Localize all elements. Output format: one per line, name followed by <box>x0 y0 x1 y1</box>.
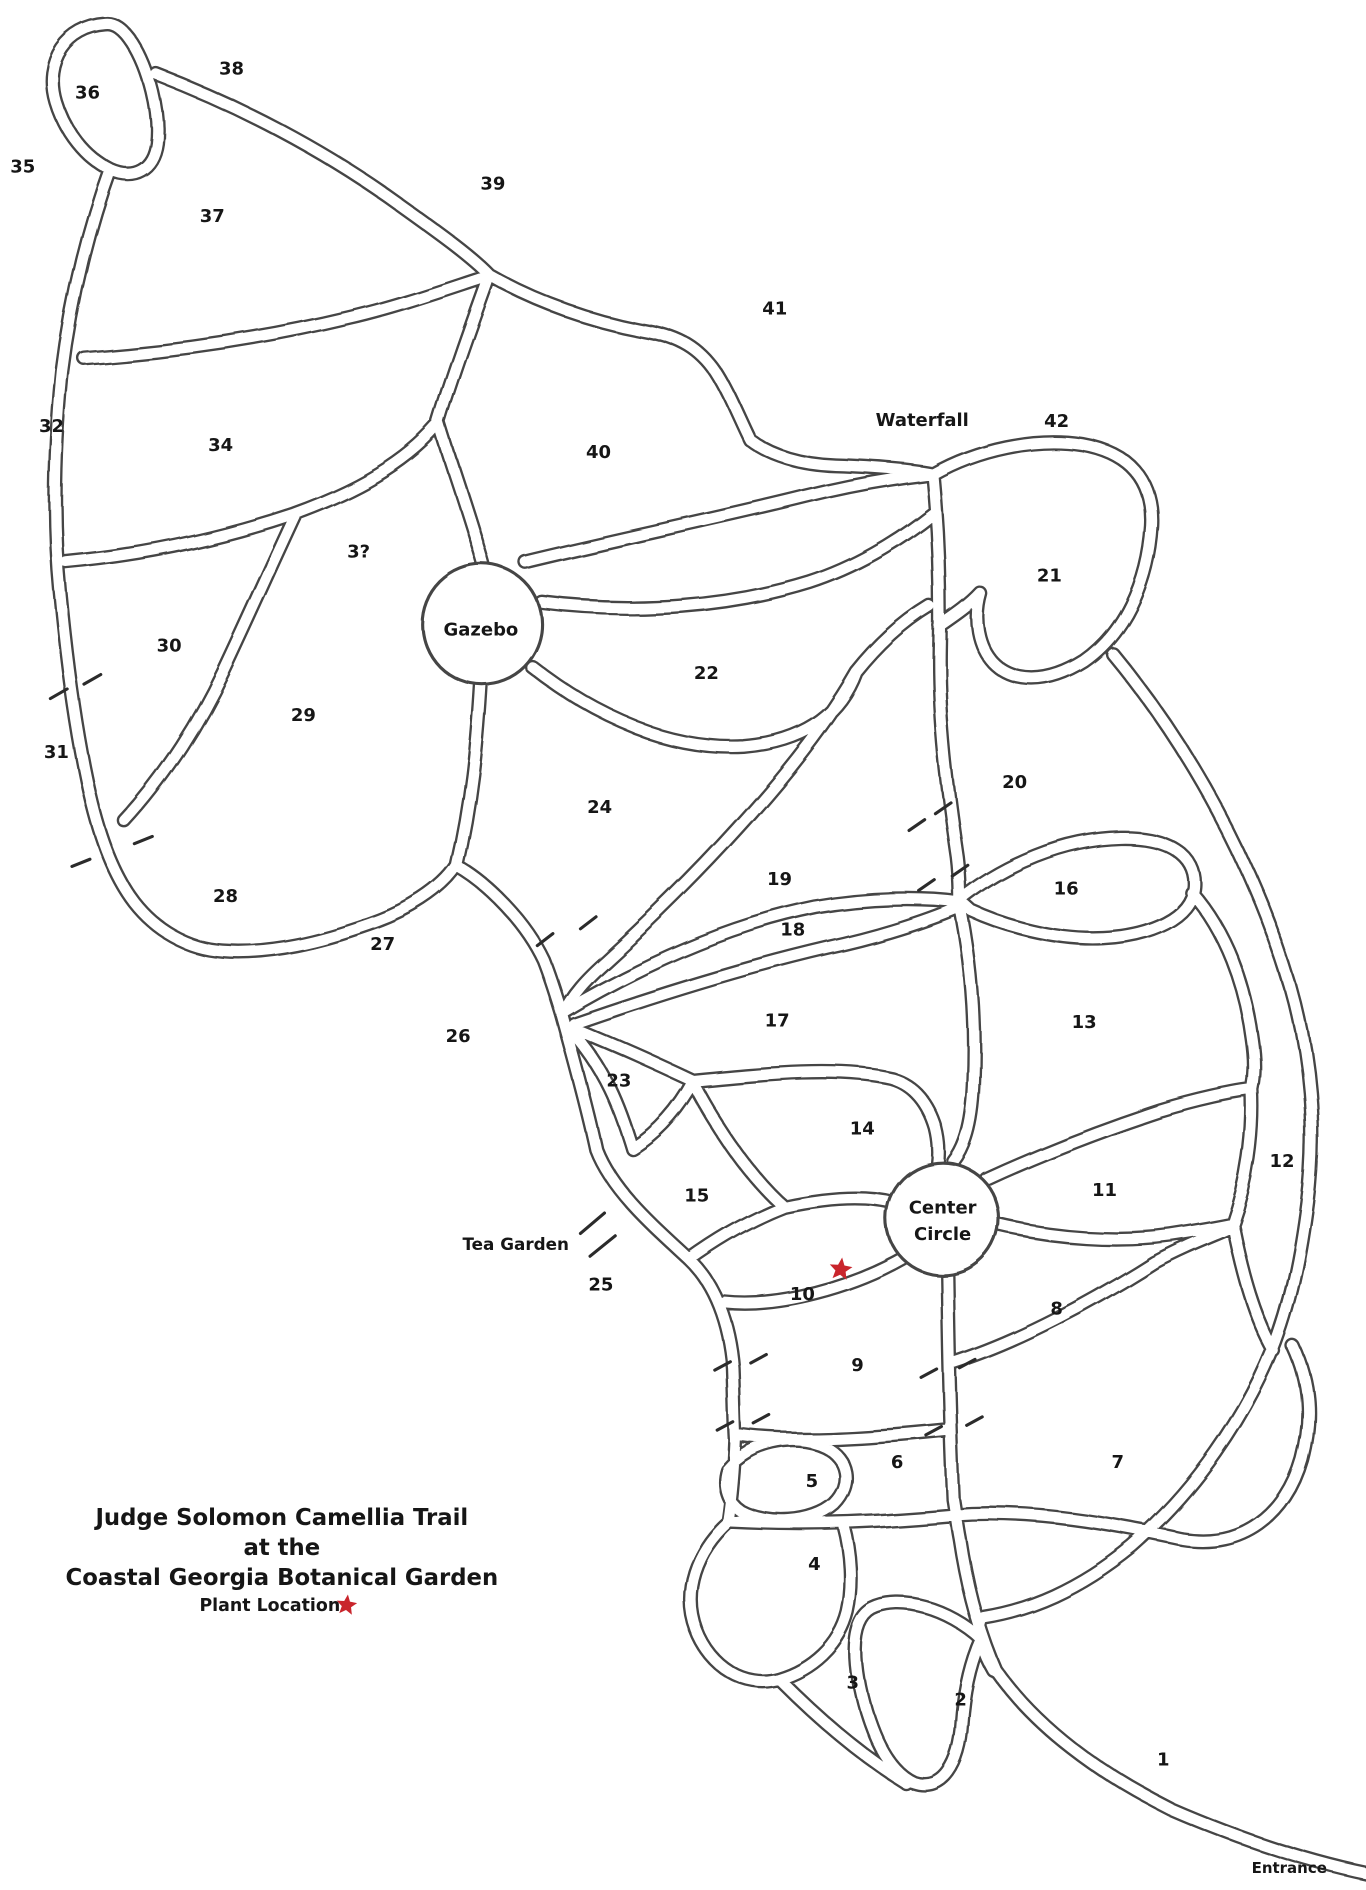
region-label-16: 16 <box>1054 879 1079 900</box>
center-circle-plaza <box>886 1163 999 1276</box>
region-label-41: 41 <box>762 298 787 319</box>
region-label-27: 27 <box>370 934 395 955</box>
legend-plant-location-label: Plant Location <box>199 1596 340 1616</box>
waterfall-label: Waterfall <box>876 410 969 431</box>
gazebo-label: Gazebo <box>444 620 519 641</box>
region-label-25: 25 <box>588 1275 613 1296</box>
region-label-31: 31 <box>44 742 69 763</box>
region-label-29: 29 <box>291 705 316 726</box>
region-label-3?: 3? <box>347 542 370 563</box>
region-label-18: 18 <box>780 920 805 941</box>
region-label-6: 6 <box>891 1452 904 1473</box>
region-label-10: 10 <box>790 1284 815 1305</box>
map-canvas: 1234567891011121314151617181920212223242… <box>0 0 1366 1890</box>
region-label-40: 40 <box>586 442 611 463</box>
feature-labels: WaterfallGazeboCenterCircleTea GardenEnt… <box>444 410 1327 1877</box>
region-label-15: 15 <box>684 1186 709 1207</box>
region-label-3: 3 <box>846 1673 859 1694</box>
region-label-32: 32 <box>39 416 64 437</box>
title-block: Judge Solomon Camellia Trail at the Coas… <box>65 1505 498 1616</box>
stairs-tick-marks <box>50 675 982 1435</box>
region-label-36: 36 <box>75 82 100 103</box>
region-label-2: 2 <box>954 1689 967 1710</box>
region-label-1: 1 <box>1157 1749 1170 1770</box>
region-label-37: 37 <box>200 206 225 227</box>
region-label-30: 30 <box>157 635 182 656</box>
region-label-28: 28 <box>213 886 238 907</box>
region-label-17: 17 <box>765 1011 790 1032</box>
region-label-39: 39 <box>480 174 505 195</box>
region-label-26: 26 <box>446 1026 471 1047</box>
region-label-42: 42 <box>1044 411 1069 432</box>
region-label-9: 9 <box>851 1355 864 1376</box>
region-label-14: 14 <box>850 1119 875 1140</box>
region-label-23: 23 <box>606 1071 631 1092</box>
map-title-line-3: Coastal Georgia Botanical Garden <box>65 1565 498 1591</box>
region-label-12: 12 <box>1270 1151 1295 1172</box>
region-label-11: 11 <box>1092 1180 1117 1201</box>
region-label-35: 35 <box>10 157 35 178</box>
region-label-38: 38 <box>219 58 244 79</box>
entrance-label: Entrance <box>1252 1859 1327 1877</box>
region-label-8: 8 <box>1050 1298 1063 1319</box>
region-label-5: 5 <box>806 1471 819 1492</box>
center-circle-label: Center <box>909 1198 977 1219</box>
map-title-line-2: at the <box>243 1535 320 1561</box>
trail-map: 1234567891011121314151617181920212223242… <box>0 0 1366 1890</box>
region-label-34: 34 <box>208 435 233 456</box>
region-label-22: 22 <box>694 663 719 684</box>
center-circle-label: Circle <box>914 1224 971 1245</box>
region-label-21: 21 <box>1037 566 1062 587</box>
region-label-13: 13 <box>1072 1012 1097 1033</box>
tea-garden-label: Tea Garden <box>462 1234 568 1254</box>
map-title-line-1: Judge Solomon Camellia Trail <box>93 1505 468 1531</box>
region-label-4: 4 <box>808 1554 821 1575</box>
region-label-7: 7 <box>1111 1452 1124 1473</box>
region-label-24: 24 <box>587 797 612 818</box>
region-label-19: 19 <box>767 869 792 890</box>
region-label-20: 20 <box>1002 772 1027 793</box>
